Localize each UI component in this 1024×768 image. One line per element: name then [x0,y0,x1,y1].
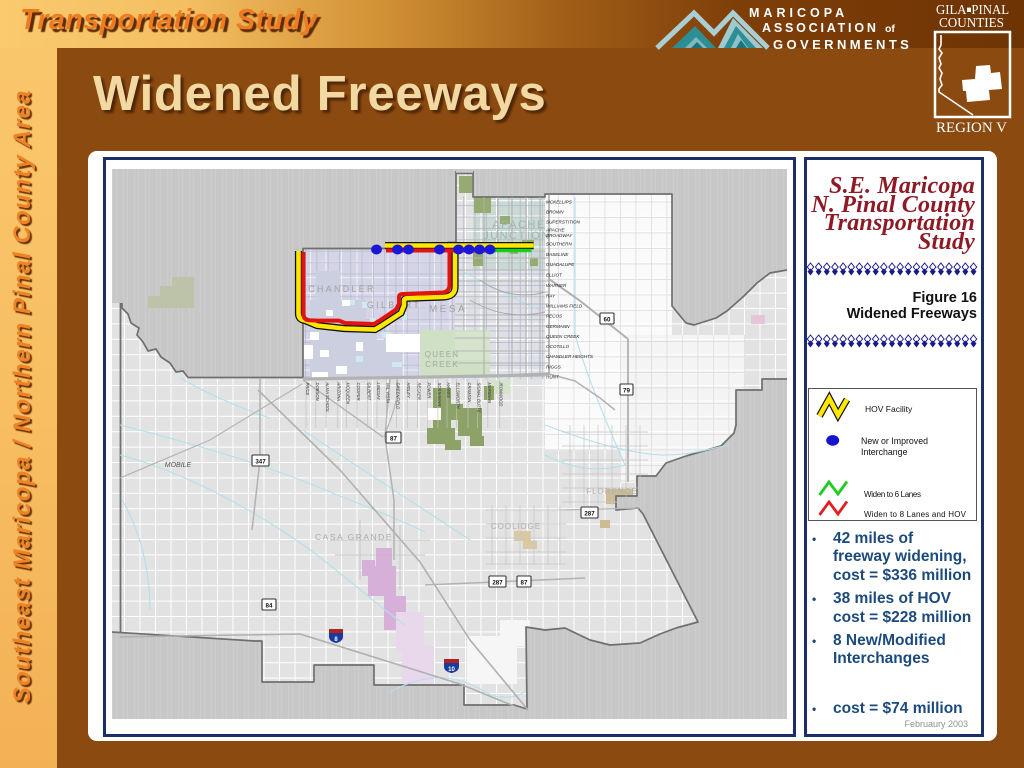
svg-text:MCKELLIPS: MCKELLIPS [546,200,573,205]
svg-text:BASELINE: BASELINE [546,252,569,257]
svg-text:Widen to 8 Lanes and HOV: Widen to 8 Lanes and HOV [864,510,967,519]
svg-text:ARIZONA: ARIZONA [337,382,342,402]
svg-text:GILBERT: GILBERT [366,383,371,401]
svg-text:IRONWOOD: IRONWOOD [499,383,504,407]
svg-text:CREEK: CREEK [425,360,459,369]
svg-text:SUPERSTITION: SUPERSTITION [546,220,581,225]
svg-text:ELLSWORTH: ELLSWORTH [456,383,461,410]
svg-text:SIGNAL BUTTE: SIGNAL BUTTE [477,383,482,413]
svg-text:SOSSAMAN: SOSSAMAN [437,383,442,408]
svg-text:CHANDLER HEIGHTS: CHANDLER HEIGHTS [546,354,594,359]
svg-text:RECKER: RECKER [416,383,421,400]
svg-text:ELLIOT: ELLIOT [546,273,563,278]
svg-text:HOV Facility: HOV Facility [865,404,913,414]
svg-text:MARICOPA: MARICOPA [749,6,848,20]
svg-text:OCOTILLO: OCOTILLO [546,344,570,349]
svg-text:RAY: RAY [546,294,556,299]
svg-text:WILLIAMS FIELD: WILLIAMS FIELD [546,304,583,309]
svg-text:BROADWAY: BROADWAY [546,233,573,238]
svg-text:ALMA SCHOOL: ALMA SCHOOL [325,382,330,414]
svg-text:COOLIDGE: COOLIDGE [491,522,541,531]
svg-text:VAL VISTA: VAL VISTA [385,383,390,404]
svg-text:CASA GRANDE: CASA GRANDE [315,532,393,542]
svg-text:COUNTIES: COUNTIES [939,16,1004,31]
svg-text:MESA: MESA [429,304,467,315]
svg-text:MOBILE: MOBILE [165,462,192,469]
svg-text:287: 287 [492,579,503,586]
svg-text:ASSOCIATION of: ASSOCIATION of [762,21,895,35]
svg-text:Widen to 6 Lanes: Widen to 6 Lanes [864,490,921,499]
svg-text:RIGGS: RIGGS [546,365,562,370]
svg-text:WARNER: WARNER [546,283,567,288]
svg-text:FLORENCE: FLORENCE [586,487,638,496]
svg-text:MCQUEEN: MCQUEEN [345,383,350,405]
svg-text:QUEEN: QUEEN [425,350,459,359]
svg-text:87: 87 [390,435,397,442]
svg-text:BROWN: BROWN [546,210,564,215]
svg-text:87: 87 [521,579,528,586]
svg-text:60: 60 [604,316,611,323]
svg-text:347: 347 [255,458,266,465]
svg-text:LINDSAY: LINDSAY [376,383,381,402]
svg-text:REGION V: REGION V [936,120,1007,136]
svg-text:79: 79 [623,387,630,394]
svg-text:New or Improved: New or Improved [861,436,928,446]
svg-text:HUNT: HUNT [546,375,560,380]
svg-text:HAWES: HAWES [446,383,451,398]
svg-text:CRISMON: CRISMON [467,383,472,404]
svg-text:COOPER: COOPER [356,383,361,401]
svg-text:287: 287 [584,510,595,517]
svg-text:JUNCTION: JUNCTION [483,230,551,242]
svg-text:QUEEN CREEK: QUEEN CREEK [546,334,580,339]
svg-text:GREENFIELD: GREENFIELD [395,383,400,410]
svg-text:10: 10 [448,667,455,673]
svg-text:HIGLEY: HIGLEY [406,383,411,400]
svg-text:GERMANN: GERMANN [546,324,570,329]
svg-text:POWER: POWER [427,383,432,399]
svg-text:PRICE: PRICE [305,383,310,396]
svg-text:GOVERNMENTS: GOVERNMENTS [773,37,912,52]
svg-text:DOBSON: DOBSON [315,383,320,402]
svg-text:SOUTHERN: SOUTHERN [546,242,572,247]
svg-text:CHANDLER: CHANDLER [308,284,376,294]
svg-text:PECOS: PECOS [546,314,563,319]
svg-text:Interchange: Interchange [861,447,908,457]
svg-text:GUADALUPE: GUADALUPE [546,262,575,267]
svg-text:84: 84 [266,602,273,609]
svg-text:MERIDIAN: MERIDIAN [487,383,492,404]
svg-text:APACHE: APACHE [545,228,565,233]
